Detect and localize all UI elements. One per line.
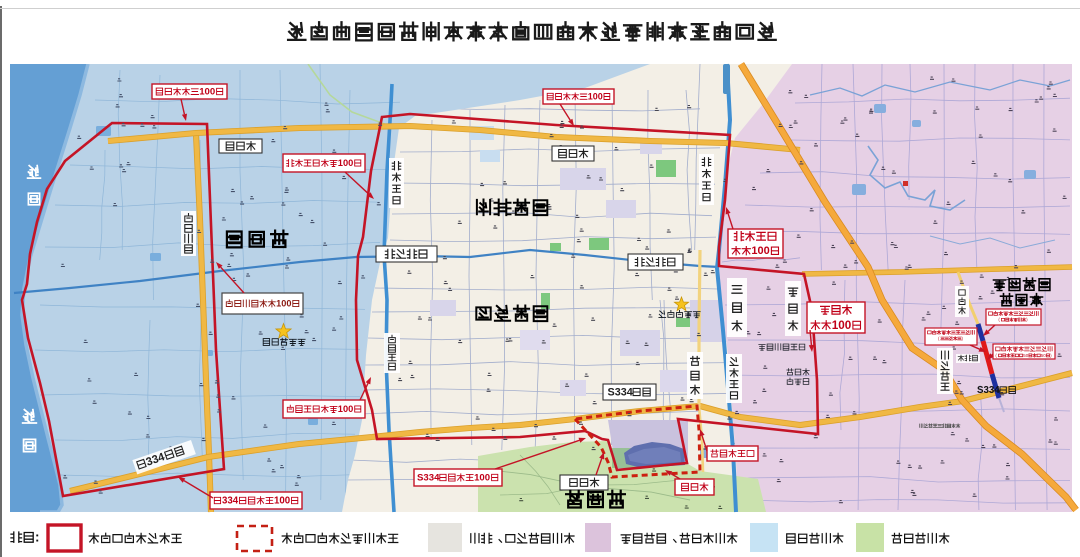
svg-text:100: 100 xyxy=(338,158,354,168)
svg-text:100: 100 xyxy=(338,404,354,414)
svg-text:334: 334 xyxy=(222,496,239,507)
svg-text:100: 100 xyxy=(274,496,290,507)
svg-text:S334: S334 xyxy=(417,473,440,484)
svg-text:100: 100 xyxy=(199,87,215,98)
svg-text:S334: S334 xyxy=(977,385,1000,396)
svg-text:100: 100 xyxy=(588,91,603,101)
svg-text:100: 100 xyxy=(832,319,852,332)
svg-text:100: 100 xyxy=(276,298,291,308)
svg-text:S334: S334 xyxy=(608,386,633,398)
svg-text::: : xyxy=(35,530,40,545)
svg-text:100: 100 xyxy=(751,245,769,257)
svg-text:50: 50 xyxy=(1023,353,1029,358)
svg-text:100: 100 xyxy=(474,473,490,484)
svg-text:50: 50 xyxy=(1041,353,1047,358)
